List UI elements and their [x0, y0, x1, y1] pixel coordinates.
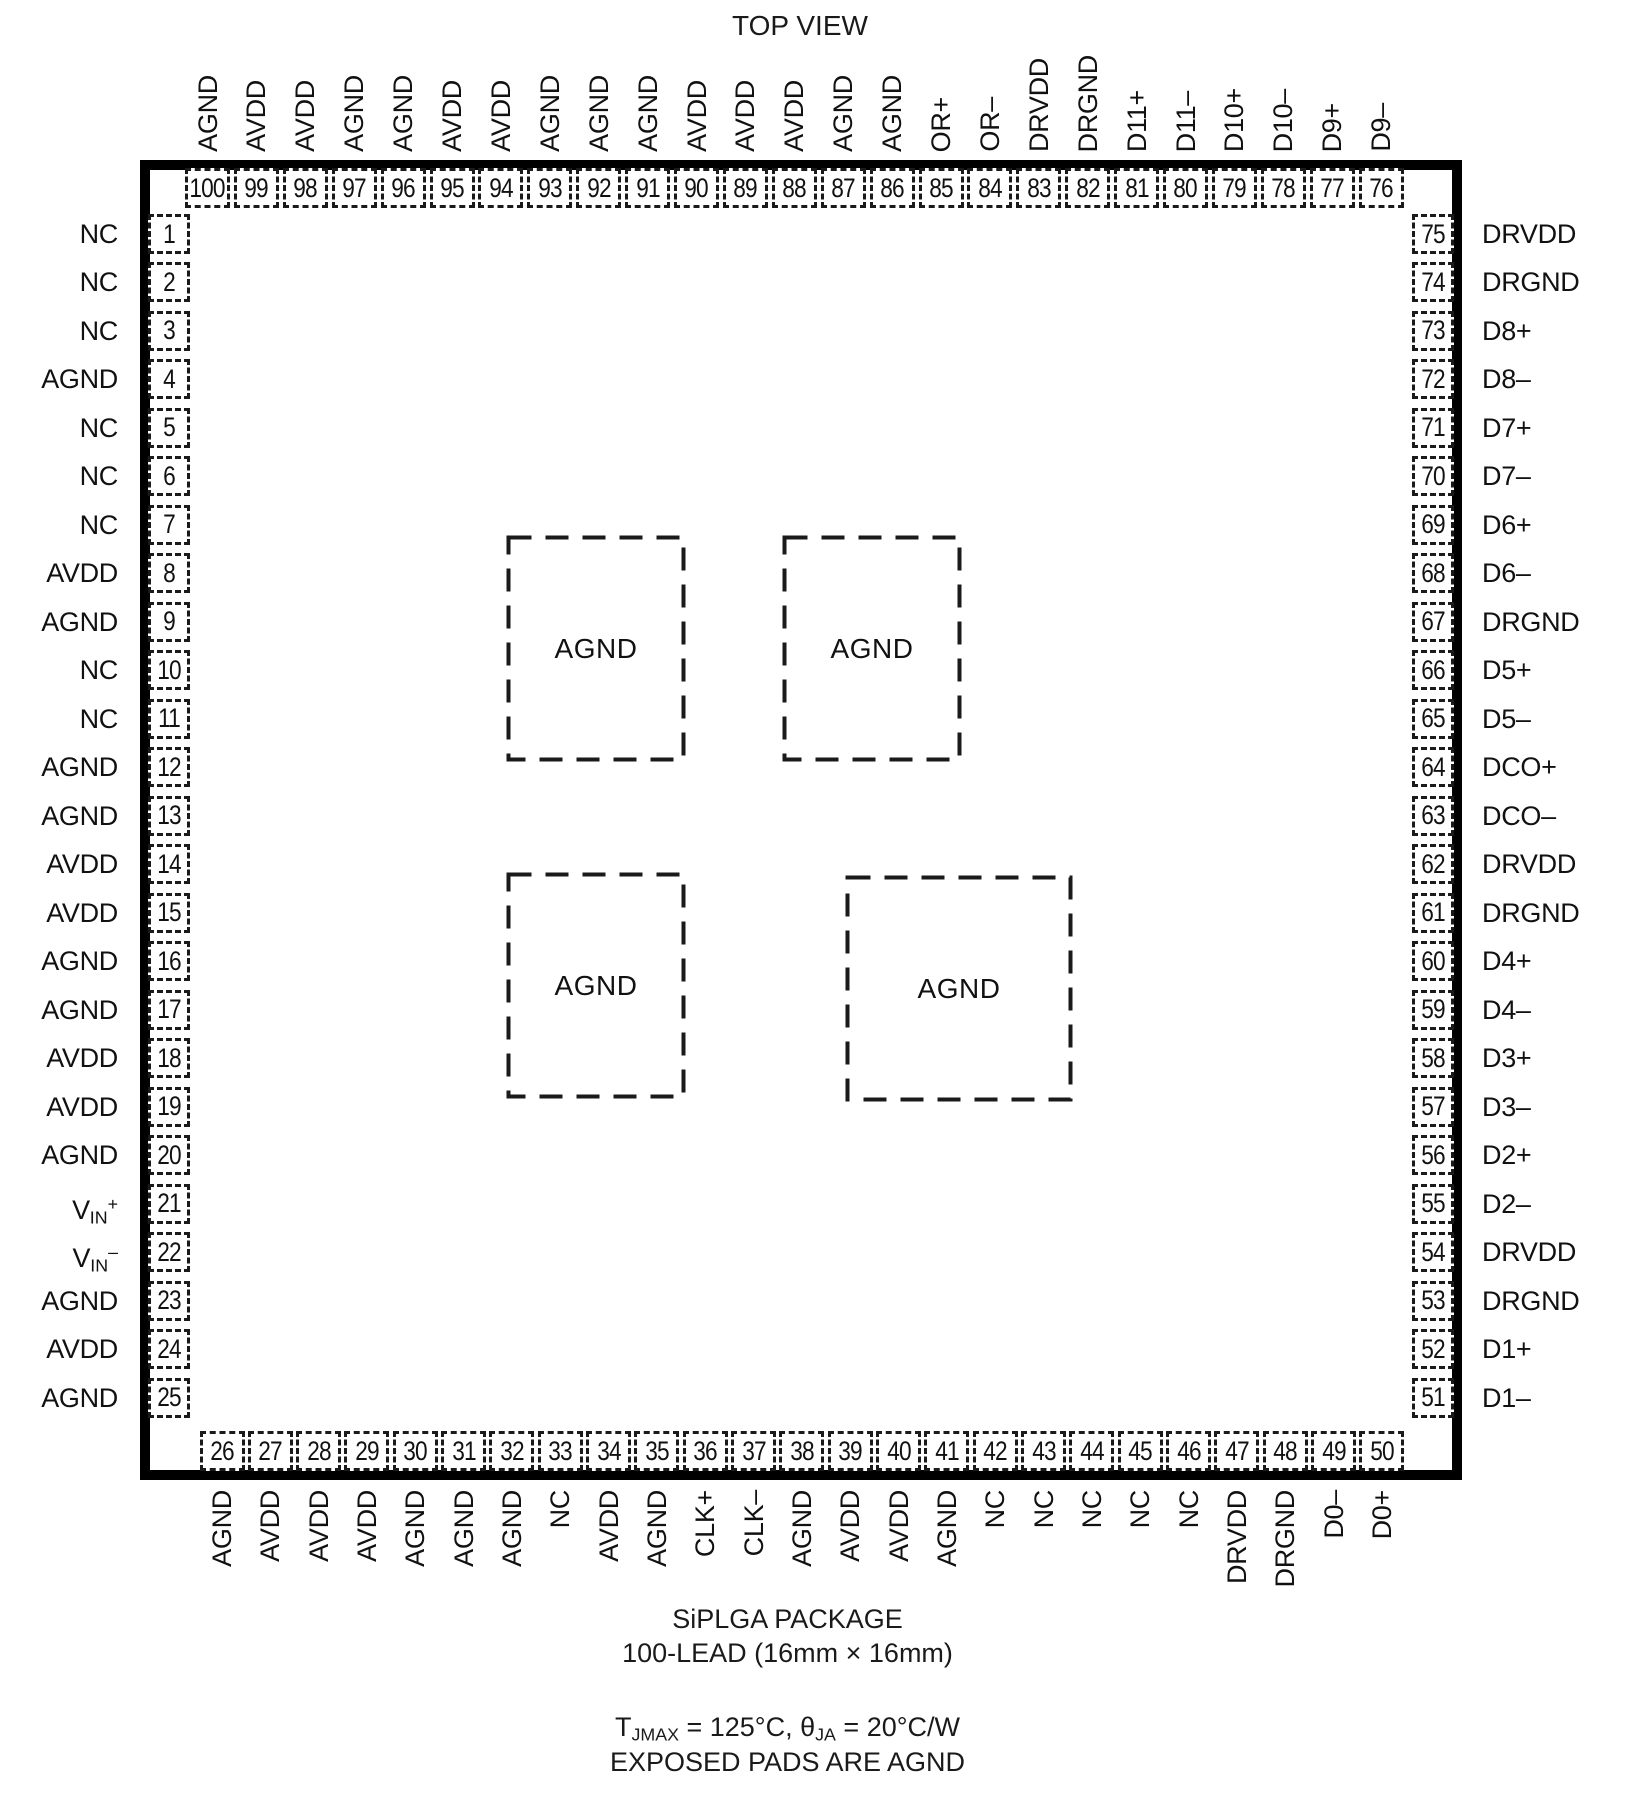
pin-box-82: 82	[1065, 168, 1110, 208]
pin-label-98: AVDD	[291, 80, 319, 152]
exposed-pad-label: AGND	[918, 973, 1001, 1005]
pin-box-26: 26	[200, 1431, 245, 1471]
pin-number: 59	[1421, 994, 1445, 1025]
pin-number: 68	[1421, 558, 1445, 589]
pin-box-19: 19	[148, 1087, 190, 1127]
pin-label-38: AGND	[788, 1490, 816, 1567]
pin-box-15: 15	[148, 893, 190, 933]
pin-label-76: D9–	[1367, 103, 1395, 152]
pin-number: 73	[1421, 315, 1445, 346]
pin-number: 37	[742, 1436, 766, 1467]
pin-box-87: 87	[821, 168, 866, 208]
exposed-pad-label: AGND	[555, 970, 638, 1002]
pin-box-79: 79	[1212, 168, 1257, 208]
pin-number: 96	[391, 173, 415, 204]
package-name: SiPLGA PACKAGE	[0, 1604, 1575, 1635]
pin-number: 74	[1421, 267, 1445, 298]
pin-box-25: 25	[148, 1378, 190, 1418]
exposed-pad-top-right: AGND	[782, 535, 962, 762]
pin-number: 50	[1370, 1436, 1394, 1467]
pin-box-24: 24	[148, 1329, 190, 1369]
pin-box-23: 23	[148, 1281, 190, 1321]
pin-label-59: D4–	[1482, 995, 1531, 1025]
pin-number: 27	[259, 1436, 283, 1467]
pin-number: 84	[978, 173, 1002, 204]
pin-label-95: AVDD	[438, 80, 466, 152]
pin-number: 75	[1421, 219, 1445, 250]
pin-box-77: 77	[1310, 168, 1355, 208]
pin-number: 30	[404, 1436, 428, 1467]
pin-label-10: NC	[0, 655, 118, 685]
pin-box-95: 95	[430, 168, 475, 208]
pin-label-11: NC	[0, 704, 118, 734]
pin-box-89: 89	[723, 168, 768, 208]
pin-number: 49	[1322, 1436, 1346, 1467]
pin-box-6: 6	[148, 456, 190, 496]
pin-label-96: AGND	[389, 75, 417, 152]
pin-label-64: DCO+	[1482, 752, 1557, 782]
pin-box-62: 62	[1412, 844, 1454, 884]
pin-number: 60	[1421, 946, 1445, 977]
pin-box-78: 78	[1261, 168, 1306, 208]
pin-number: 65	[1421, 703, 1445, 734]
pin-box-40: 40	[876, 1431, 921, 1471]
pin-number: 69	[1421, 509, 1445, 540]
pin-label-72: D8–	[1482, 364, 1531, 394]
pin-number: 1	[163, 219, 175, 250]
pin-number: 51	[1421, 1382, 1445, 1413]
pin-label-13: AGND	[0, 801, 118, 831]
pin-box-61: 61	[1412, 893, 1454, 933]
pin-box-51: 51	[1412, 1378, 1454, 1418]
pin-label-57: D3–	[1482, 1092, 1531, 1122]
pin-number: 45	[1128, 1436, 1152, 1467]
pin-number: 7	[163, 509, 175, 540]
pin-box-99: 99	[234, 168, 279, 208]
pin-label-88: AVDD	[780, 80, 808, 152]
pin-label-70: D7–	[1482, 461, 1531, 491]
pin-number: 81	[1125, 173, 1149, 204]
pin-box-59: 59	[1412, 990, 1454, 1030]
pin-label-58: D3+	[1482, 1043, 1531, 1073]
pin-label-31: AGND	[450, 1490, 478, 1567]
pin-label-99: AVDD	[242, 80, 270, 152]
pin-label-63: DCO–	[1482, 801, 1556, 831]
pin-box-41: 41	[924, 1431, 969, 1471]
pin-box-31: 31	[441, 1431, 486, 1471]
pin-box-56: 56	[1412, 1135, 1454, 1175]
pin-number: 55	[1421, 1188, 1445, 1219]
pin-box-52: 52	[1412, 1329, 1454, 1369]
pin-number: 4	[163, 364, 175, 395]
pin-number: 2	[163, 267, 175, 298]
pin-box-32: 32	[489, 1431, 534, 1471]
pin-label-47: DRVDD	[1223, 1490, 1251, 1584]
pin-number: 95	[440, 173, 464, 204]
pin-number: 53	[1421, 1285, 1445, 1316]
exposed-pad-note: EXPOSED PADS ARE AGND	[0, 1747, 1575, 1778]
pin-number: 12	[157, 752, 181, 783]
pin-box-8: 8	[148, 553, 190, 593]
pin-number: 20	[157, 1140, 181, 1171]
pin-label-81: D11+	[1123, 90, 1151, 152]
pin-label-16: AGND	[0, 946, 118, 976]
pin-number: 42	[983, 1436, 1007, 1467]
pin-label-3: NC	[0, 316, 118, 346]
pin-label-85: OR+	[927, 97, 955, 152]
pin-number: 63	[1421, 800, 1445, 831]
pin-number: 24	[157, 1334, 181, 1365]
pin-label-49: D0–	[1320, 1490, 1348, 1539]
pin-number: 14	[157, 849, 181, 880]
exposed-pad-bottom-left: AGND	[506, 872, 686, 1099]
pin-label-84: OR–	[976, 97, 1004, 152]
package-outline	[140, 160, 1462, 1480]
pin-box-14: 14	[148, 844, 190, 884]
pin-box-80: 80	[1163, 168, 1208, 208]
pin-box-42: 42	[973, 1431, 1018, 1471]
pin-number: 21	[157, 1188, 181, 1219]
pin-label-20: AGND	[0, 1140, 118, 1170]
pin-box-7: 7	[148, 505, 190, 545]
pin-label-91: AGND	[634, 75, 662, 152]
exposed-pad-bottom-right: AGND	[845, 875, 1073, 1102]
pin-box-9: 9	[148, 602, 190, 642]
pin-number: 93	[538, 173, 562, 204]
pin-label-4: AGND	[0, 364, 118, 394]
pin-label-19: AVDD	[0, 1092, 118, 1122]
pin-box-96: 96	[381, 168, 426, 208]
pin-number: 87	[831, 173, 855, 204]
pin-number: 11	[158, 703, 180, 734]
pin-label-97: AGND	[340, 75, 368, 152]
pin-box-13: 13	[148, 796, 190, 836]
pin-number: 44	[1080, 1436, 1104, 1467]
pin-box-37: 37	[731, 1431, 776, 1471]
pin-label-27: AVDD	[256, 1490, 284, 1562]
pin-box-46: 46	[1166, 1431, 1211, 1471]
pin-label-42: NC	[981, 1490, 1009, 1528]
pin-label-17: AGND	[0, 995, 118, 1025]
pin-box-84: 84	[967, 168, 1012, 208]
pin-label-55: D2–	[1482, 1189, 1531, 1219]
pin-label-54: DRVDD	[1482, 1237, 1576, 1267]
pin-box-35: 35	[634, 1431, 679, 1471]
pin-label-35: AGND	[643, 1490, 671, 1567]
pin-label-100: AGND	[194, 75, 222, 152]
pin-box-97: 97	[332, 168, 377, 208]
pin-box-98: 98	[283, 168, 328, 208]
pin-label-24: AVDD	[0, 1334, 118, 1364]
pin-number: 28	[307, 1436, 331, 1467]
pin-number: 97	[342, 173, 366, 204]
pin-box-91: 91	[625, 168, 670, 208]
pin-box-70: 70	[1412, 456, 1454, 496]
pin-box-5: 5	[148, 408, 190, 448]
pin-label-22: VIN–	[0, 1237, 118, 1280]
pin-number: 85	[929, 173, 953, 204]
pin-box-100: 100	[185, 168, 230, 208]
pin-number: 58	[1421, 1043, 1445, 1074]
pin-number: 6	[163, 461, 175, 492]
pin-label-44: NC	[1078, 1490, 1106, 1528]
pin-number: 79	[1223, 173, 1247, 204]
pin-number: 22	[157, 1237, 181, 1268]
pin-box-92: 92	[576, 168, 621, 208]
pin-number: 80	[1174, 173, 1198, 204]
pin-label-56: D2+	[1482, 1140, 1531, 1170]
pin-number: 46	[1177, 1436, 1201, 1467]
pin-box-86: 86	[870, 168, 915, 208]
pin-number: 10	[157, 655, 181, 686]
pin-label-45: NC	[1126, 1490, 1154, 1528]
pin-number: 36	[694, 1436, 718, 1467]
pin-label-60: D4+	[1482, 946, 1531, 976]
pin-number: 89	[734, 173, 758, 204]
pin-label-34: AVDD	[595, 1490, 623, 1562]
pin-number: 52	[1421, 1334, 1445, 1365]
pin-number: 66	[1421, 655, 1445, 686]
pin-number: 8	[163, 558, 175, 589]
pin-label-61: DRGND	[1482, 898, 1580, 928]
pin-box-88: 88	[772, 168, 817, 208]
pin-label-15: AVDD	[0, 898, 118, 928]
pin-label-71: D7+	[1482, 413, 1531, 443]
pin-box-20: 20	[148, 1135, 190, 1175]
pin-label-39: AVDD	[836, 1490, 864, 1562]
pin-box-4: 4	[148, 359, 190, 399]
pin-label-29: AVDD	[353, 1490, 381, 1562]
exposed-pad-top-left: AGND	[506, 535, 686, 762]
pin-label-43: NC	[1030, 1490, 1058, 1528]
pin-label-74: DRGND	[1482, 267, 1580, 297]
pin-number: 15	[157, 897, 181, 928]
pin-box-33: 33	[538, 1431, 583, 1471]
pin-box-93: 93	[527, 168, 572, 208]
pin-box-38: 38	[779, 1431, 824, 1471]
pin-label-75: DRVDD	[1482, 219, 1576, 249]
pin-box-1: 1	[148, 214, 190, 254]
pin-label-2: NC	[0, 267, 118, 297]
pin-label-7: NC	[0, 510, 118, 540]
pin-label-86: AGND	[878, 75, 906, 152]
pin-number: 56	[1421, 1140, 1445, 1171]
pin-number: 9	[163, 606, 175, 637]
pin-number: 91	[636, 173, 660, 204]
pin-number: 16	[157, 946, 181, 977]
pin-label-77: D9+	[1318, 103, 1346, 152]
pin-box-68: 68	[1412, 553, 1454, 593]
pin-box-69: 69	[1412, 505, 1454, 545]
pin-box-60: 60	[1412, 941, 1454, 981]
pin-number: 41	[935, 1436, 959, 1467]
pin-box-17: 17	[148, 990, 190, 1030]
pin-number: 67	[1421, 606, 1445, 637]
pin-label-36: CLK+	[691, 1490, 719, 1557]
pin-number: 38	[790, 1436, 814, 1467]
pin-number: 25	[157, 1382, 181, 1413]
pin-number: 29	[355, 1436, 379, 1467]
pin-label-37: CLK–	[740, 1490, 768, 1556]
pin-number: 72	[1421, 364, 1445, 395]
pin-box-55: 55	[1412, 1184, 1454, 1224]
pin-box-30: 30	[393, 1431, 438, 1471]
pin-label-90: AVDD	[683, 80, 711, 152]
pin-label-79: D10+	[1220, 88, 1248, 152]
pin-number: 71	[1421, 412, 1445, 443]
pin-number: 18	[157, 1043, 181, 1074]
pin-label-66: D5+	[1482, 655, 1531, 685]
pin-label-48: DRGND	[1271, 1490, 1299, 1588]
pin-number: 17	[157, 994, 181, 1025]
pin-number: 34	[597, 1436, 621, 1467]
pin-number: 19	[157, 1091, 181, 1122]
pin-label-87: AGND	[829, 75, 857, 152]
pin-number: 5	[163, 412, 175, 443]
pin-number: 26	[210, 1436, 234, 1467]
pin-label-68: D6–	[1482, 558, 1531, 588]
pin-label-67: DRGND	[1482, 607, 1580, 637]
pin-box-85: 85	[919, 168, 964, 208]
pin-number: 61	[1421, 897, 1445, 928]
pin-label-26: AGND	[208, 1490, 236, 1567]
pin-label-14: AVDD	[0, 849, 118, 879]
pin-box-48: 48	[1263, 1431, 1308, 1471]
pin-label-93: AGND	[536, 75, 564, 152]
pin-box-44: 44	[1069, 1431, 1114, 1471]
diagram-title: TOP VIEW	[0, 10, 1600, 42]
pin-label-6: NC	[0, 461, 118, 491]
pin-number: 83	[1027, 173, 1051, 204]
pin-label-80: D11–	[1172, 91, 1200, 152]
pin-number: 76	[1369, 173, 1393, 204]
pin-box-39: 39	[828, 1431, 873, 1471]
pin-label-83: DRVDD	[1025, 58, 1053, 152]
pin-number: 43	[1032, 1436, 1056, 1467]
pin-box-21: 21	[148, 1184, 190, 1224]
pin-box-27: 27	[248, 1431, 293, 1471]
pin-box-74: 74	[1412, 262, 1454, 302]
pin-number: 40	[887, 1436, 911, 1467]
pin-number: 64	[1421, 752, 1445, 783]
pin-label-73: D8+	[1482, 316, 1531, 346]
pin-box-34: 34	[586, 1431, 631, 1471]
pin-box-47: 47	[1214, 1431, 1259, 1471]
pin-box-45: 45	[1118, 1431, 1163, 1471]
pin-box-53: 53	[1412, 1281, 1454, 1321]
pin-number: 32	[500, 1436, 524, 1467]
pin-number: 82	[1076, 173, 1100, 204]
pin-label-41: AGND	[933, 1490, 961, 1567]
pin-box-18: 18	[148, 1038, 190, 1078]
pin-label-82: DRGND	[1074, 55, 1102, 153]
pin-box-72: 72	[1412, 359, 1454, 399]
pin-number: 57	[1421, 1091, 1445, 1122]
pin-label-53: DRGND	[1482, 1286, 1580, 1316]
exposed-pad-label: AGND	[555, 633, 638, 665]
pin-box-67: 67	[1412, 602, 1454, 642]
pin-label-92: AGND	[585, 75, 613, 152]
pin-label-52: D1+	[1482, 1334, 1531, 1364]
pin-box-57: 57	[1412, 1087, 1454, 1127]
pin-label-94: AVDD	[487, 80, 515, 152]
pin-box-3: 3	[148, 311, 190, 351]
pin-number: 31	[452, 1436, 476, 1467]
pin-box-29: 29	[344, 1431, 389, 1471]
pin-box-73: 73	[1412, 311, 1454, 351]
pin-box-64: 64	[1412, 747, 1454, 787]
pin-box-75: 75	[1412, 214, 1454, 254]
pin-label-65: D5–	[1482, 704, 1531, 734]
pin-box-36: 36	[683, 1431, 728, 1471]
pin-box-22: 22	[148, 1232, 190, 1272]
thermal-note: TJMAX = 125°C, θJA = 20°C/W	[0, 1712, 1575, 1745]
pin-box-54: 54	[1412, 1232, 1454, 1272]
pin-number: 100	[190, 173, 225, 204]
pin-number: 3	[163, 315, 175, 346]
pin-number: 78	[1272, 173, 1296, 204]
pin-box-11: 11	[148, 699, 190, 739]
pin-label-40: AVDD	[885, 1490, 913, 1562]
pin-label-9: AGND	[0, 607, 118, 637]
pin-label-23: AGND	[0, 1286, 118, 1316]
pin-box-81: 81	[1114, 168, 1159, 208]
pin-number: 47	[1225, 1436, 1249, 1467]
pin-number: 54	[1421, 1237, 1445, 1268]
pin-box-28: 28	[296, 1431, 341, 1471]
pin-box-16: 16	[148, 941, 190, 981]
pin-label-12: AGND	[0, 752, 118, 782]
pin-box-10: 10	[148, 650, 190, 690]
pin-number: 39	[838, 1436, 862, 1467]
pin-number: 98	[294, 173, 318, 204]
pin-box-12: 12	[148, 747, 190, 787]
pin-box-66: 66	[1412, 650, 1454, 690]
pin-label-78: D10–	[1269, 89, 1297, 152]
pin-number: 62	[1421, 849, 1445, 880]
pin-label-18: AVDD	[0, 1043, 118, 1073]
pin-label-62: DRVDD	[1482, 849, 1576, 879]
pin-number: 13	[157, 800, 181, 831]
pin-label-25: AGND	[0, 1383, 118, 1413]
pin-label-1: NC	[0, 219, 118, 249]
pin-number: 35	[645, 1436, 669, 1467]
pin-label-21: VIN+	[0, 1189, 118, 1232]
pin-label-30: AGND	[401, 1490, 429, 1567]
pin-label-5: NC	[0, 413, 118, 443]
pin-number: 86	[880, 173, 904, 204]
pin-number: 70	[1421, 461, 1445, 492]
exposed-pad-label: AGND	[831, 633, 914, 665]
pin-number: 88	[783, 173, 807, 204]
pin-box-43: 43	[1021, 1431, 1066, 1471]
pin-label-69: D6+	[1482, 510, 1531, 540]
pin-box-90: 90	[674, 168, 719, 208]
pin-label-89: AVDD	[731, 80, 759, 152]
pin-box-49: 49	[1311, 1431, 1356, 1471]
pin-number: 99	[245, 173, 269, 204]
package-lead-count: 100-LEAD (16mm × 16mm)	[0, 1638, 1575, 1669]
pin-box-76: 76	[1359, 168, 1404, 208]
pin-number: 92	[587, 173, 611, 204]
pin-label-32: AGND	[498, 1490, 526, 1567]
pin-number: 33	[549, 1436, 573, 1467]
pin-number: 48	[1273, 1436, 1297, 1467]
pin-number: 94	[489, 173, 513, 204]
pin-label-28: AVDD	[305, 1490, 333, 1562]
pin-number: 77	[1320, 173, 1344, 204]
pin-box-94: 94	[478, 168, 523, 208]
